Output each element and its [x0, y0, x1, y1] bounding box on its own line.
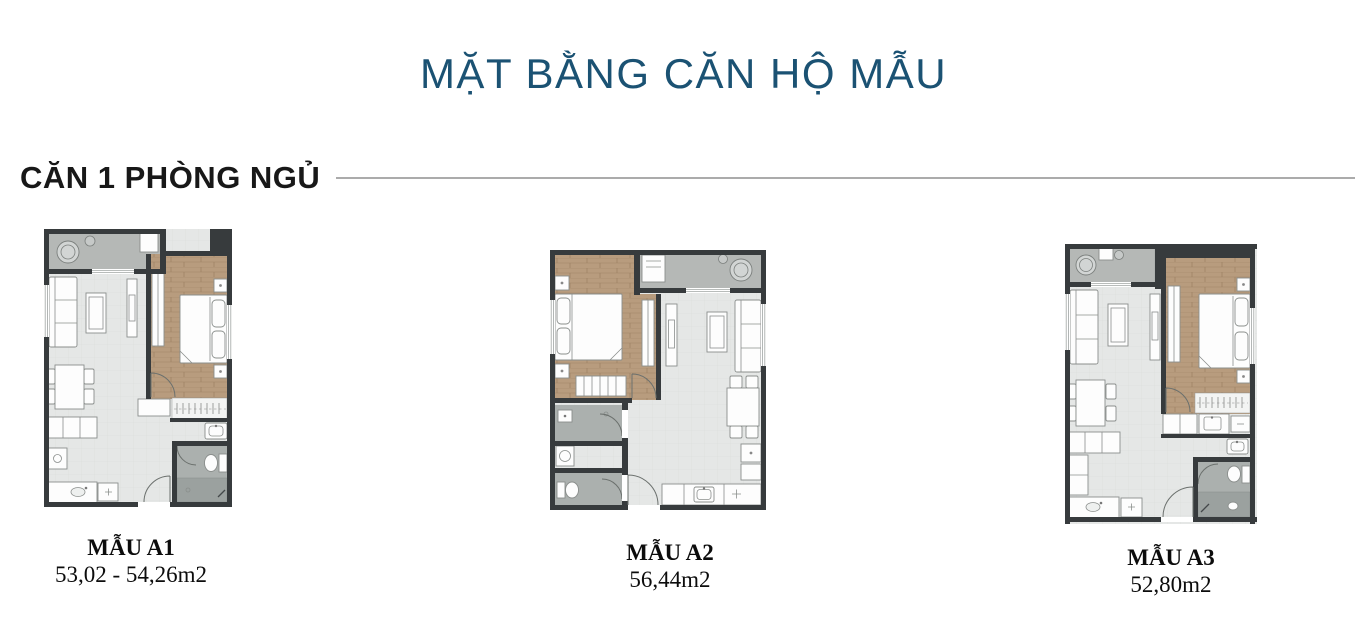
- bathroom-sink: [205, 423, 227, 439]
- balcony: [638, 252, 764, 290]
- sofa: [1070, 290, 1098, 364]
- plan-a3-label: MẪU A3 52,80m2: [1061, 545, 1281, 598]
- coffee-table: [1108, 304, 1128, 346]
- plan-a1-label: MẪU A1 53,02 - 54,26m2: [21, 535, 241, 588]
- balcony-cabinet: [1099, 248, 1113, 260]
- coffee-table: [707, 312, 727, 352]
- wc: [555, 473, 622, 505]
- toilet-tank: [1242, 466, 1250, 483]
- floorplan-a1: [42, 227, 234, 509]
- bathroom: [555, 405, 622, 441]
- bathroom: [177, 446, 227, 502]
- section-header: CĂN 1 PHÒNG NGỦ: [20, 160, 1357, 196]
- closet-hatch: [138, 398, 227, 419]
- plan-a2-name: MẪU A2: [560, 540, 780, 566]
- balcony: [1067, 246, 1155, 284]
- toilet-tank: [219, 454, 227, 472]
- wardrobe: [1168, 286, 1180, 362]
- bathroom: [1198, 462, 1250, 517]
- plan-a1-area: 53,02 - 54,26m2: [21, 562, 241, 588]
- plan-a2-label: MẪU A2 56,44m2: [560, 540, 780, 593]
- page: { "page": { "title": "MẶT BẰNG CĂN HỘ MẪ…: [0, 0, 1367, 642]
- tv-console: [127, 279, 137, 337]
- page-title: MẶT BẰNG CĂN HỘ MẪU: [0, 50, 1367, 98]
- counter-row: [1163, 414, 1250, 434]
- floorplan-a3: [1063, 242, 1259, 526]
- floorplan-a1-drawing: [42, 227, 234, 509]
- section-divider-line: [336, 177, 1355, 179]
- sofa: [49, 277, 77, 347]
- plan-a2-area: 56,44m2: [560, 567, 780, 593]
- balcony: [46, 231, 162, 271]
- toilet-bowl: [1228, 466, 1241, 482]
- bathroom-sink: [1227, 439, 1248, 454]
- plan-a3-name: MẪU A3: [1061, 545, 1281, 571]
- hall-cabinet: [556, 446, 574, 466]
- floorplan-a2: [548, 248, 768, 512]
- floorplan-a3-drawing: [1063, 242, 1259, 526]
- floorplan-a2-drawing: [548, 248, 768, 512]
- balcony-cabinet: [642, 255, 665, 282]
- toilet-tank: [557, 482, 565, 498]
- plan-a3-area: 52,80m2: [1061, 572, 1281, 598]
- plan-a1-name: MẪU A1: [21, 535, 241, 561]
- wardrobe: [152, 272, 164, 346]
- tv-console: [1150, 294, 1160, 360]
- bed: [1199, 278, 1250, 383]
- ac-unit: [140, 233, 158, 252]
- coffee-table: [86, 293, 106, 333]
- sofa: [735, 300, 761, 372]
- closet-hatch: [1195, 393, 1250, 413]
- section-heading: CĂN 1 PHÒNG NGỦ: [20, 160, 320, 196]
- toilet-bowl: [566, 482, 579, 498]
- toilet-bowl: [205, 455, 218, 472]
- tv-console: [666, 304, 677, 366]
